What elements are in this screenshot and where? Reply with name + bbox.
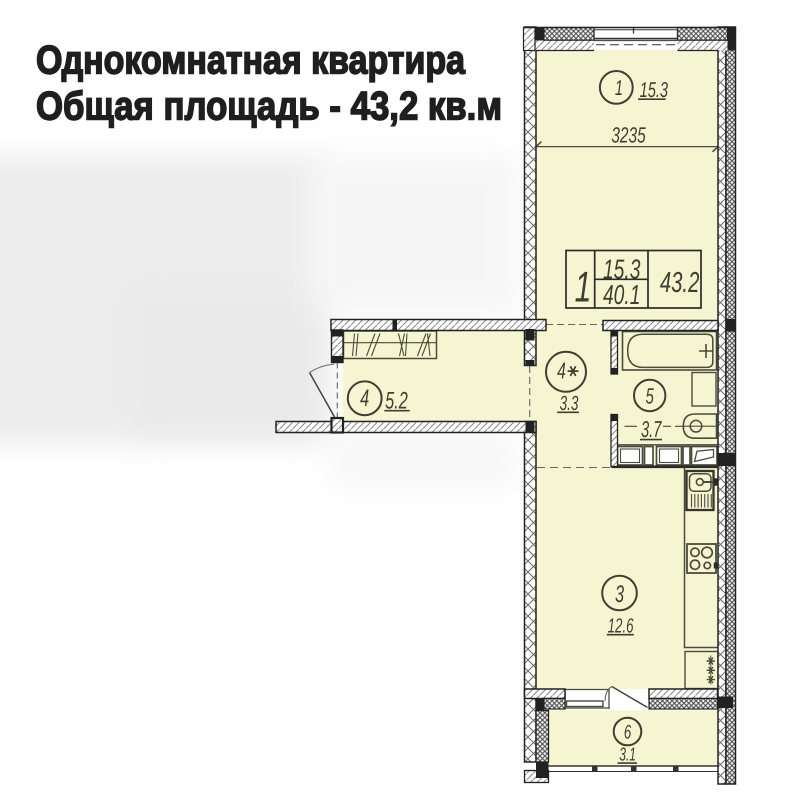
svg-text:5: 5 <box>646 384 655 409</box>
svg-text:6: 6 <box>624 722 631 744</box>
svg-text:4: 4 <box>360 385 369 412</box>
svg-text:3.1: 3.1 <box>619 744 636 765</box>
svg-text:Общая площадь - 43,2 кв.м: Общая площадь - 43,2 кв.м <box>36 85 502 129</box>
svg-text:1: 1 <box>575 264 592 312</box>
svg-text:1: 1 <box>615 76 623 100</box>
svg-text:12.6: 12.6 <box>608 614 634 637</box>
svg-text:43.2: 43.2 <box>660 267 700 299</box>
svg-text:40.1: 40.1 <box>603 279 640 310</box>
svg-text:3.3: 3.3 <box>560 392 579 415</box>
svg-text:3.7: 3.7 <box>641 416 662 442</box>
svg-text:Однокомнатная квартира: Однокомнатная квартира <box>36 39 466 83</box>
svg-text:3: 3 <box>615 581 625 608</box>
svg-text:4: 4 <box>557 358 566 384</box>
svg-text:3235: 3235 <box>611 122 646 147</box>
